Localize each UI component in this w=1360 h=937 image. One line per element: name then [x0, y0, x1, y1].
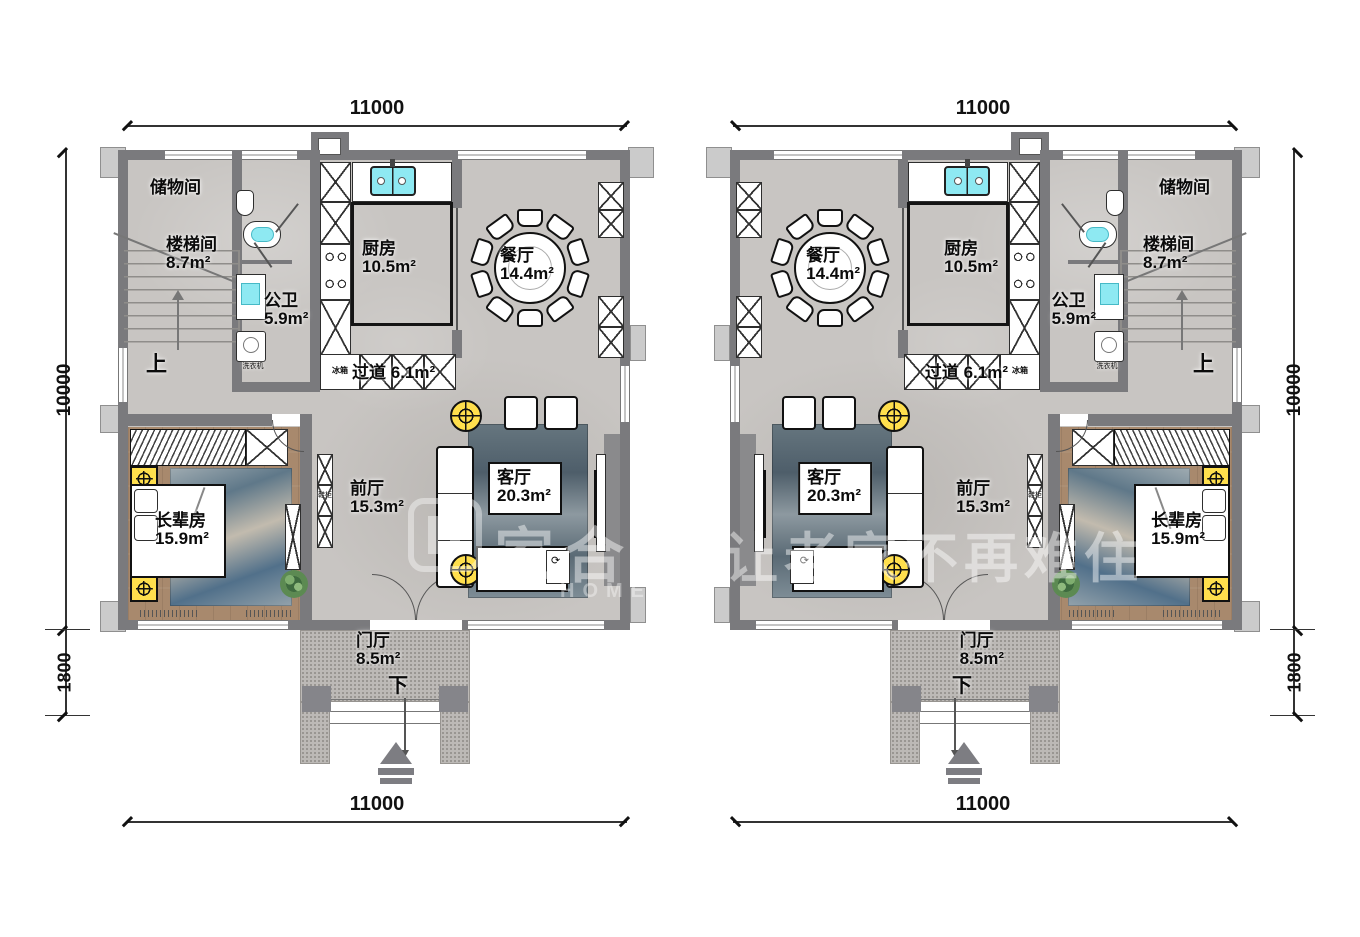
kitchen-cabinet — [320, 202, 351, 244]
dining-cabinet — [736, 210, 762, 238]
room-name: 门厅 — [960, 632, 1004, 650]
dining-chair — [817, 309, 843, 327]
room-name: 客厅 — [807, 469, 861, 487]
dimension-tick — [57, 711, 68, 722]
room-label-corridor: 过道 6.1m² — [352, 364, 435, 382]
entry-door-opening — [370, 620, 462, 630]
tv-screen — [594, 470, 597, 538]
kitchen-cabinet — [320, 162, 351, 202]
dining-cabinet — [598, 296, 624, 327]
plant — [1052, 570, 1080, 598]
sofa-cushion-line — [888, 493, 922, 494]
floor-plan-left: 11000 11000 10000 1800 — [0, 0, 690, 937]
kitchen-cabinet — [320, 300, 351, 356]
tv-board — [596, 454, 606, 552]
room-label-elder: 长辈房 15.9m² — [155, 512, 209, 549]
room-name: 餐厅 — [806, 247, 860, 265]
room-label-living: 客厅 20.3m² — [488, 462, 562, 515]
pilaster-tab — [714, 325, 730, 361]
room-area: 15.3m² — [350, 498, 404, 516]
room-label-foyer: 门厅 8.5m² — [960, 632, 1004, 669]
kitchen-cabinet — [1009, 300, 1040, 356]
stair-arrow-head — [172, 290, 184, 300]
room-area: 10.5m² — [944, 258, 998, 276]
room-name: 楼梯间 — [166, 236, 217, 254]
stair-arrow-line — [177, 298, 179, 350]
room-label-kitchen: 厨房 10.5m² — [362, 240, 416, 277]
room-area: 15.9m² — [155, 530, 209, 548]
dimension-label-top: 11000 — [327, 98, 427, 120]
room-name: 楼梯间 — [1143, 236, 1194, 254]
armchair — [504, 396, 538, 430]
room-name: 过道 — [352, 363, 386, 382]
bathtub-water — [1086, 227, 1109, 242]
chimney-inner — [1019, 138, 1042, 155]
shoe-cabinet-label: 鞋柜 — [318, 492, 332, 499]
floor-plan-image: 11000 11000 10000 1800 — [0, 0, 1360, 937]
marker-up: 上 — [146, 354, 167, 377]
window — [730, 366, 740, 422]
pilaster-tab — [714, 587, 730, 623]
room-name: 公卫 — [264, 292, 308, 310]
window-sill-comb — [246, 610, 294, 617]
dining-chair — [517, 309, 543, 327]
shoe-cabinet-label: 鞋柜 — [1028, 492, 1042, 499]
chimney-inner — [318, 138, 341, 155]
wardrobe — [1114, 429, 1230, 466]
room-name: 客厅 — [497, 469, 551, 487]
wardrobe — [130, 429, 246, 466]
dimension-label-bottom: 11000 — [933, 794, 1033, 816]
porch-step-line — [920, 723, 1030, 724]
nightstand-lamp — [1202, 576, 1230, 602]
room-name: 过道 — [925, 363, 959, 382]
kitchen-cabinet — [1009, 162, 1040, 202]
dimension-line-top — [733, 125, 1232, 127]
room-name: 厨房 — [362, 240, 416, 258]
room-label-corridor: 过道 6.1m² — [925, 364, 1008, 382]
bathtub-water — [251, 227, 274, 242]
kitchen-cabinet — [1009, 202, 1040, 244]
room-label-stairwell: 楼梯间 8.7m² — [166, 236, 217, 273]
window — [458, 150, 586, 160]
room-label-front-hall: 前厅 15.3m² — [350, 480, 404, 517]
stove — [1009, 244, 1040, 300]
entry-marker-triangle — [380, 742, 412, 764]
porch-column — [892, 686, 921, 712]
wall-kitchen-right-stub — [898, 160, 908, 208]
room-name: 餐厅 — [500, 247, 554, 265]
window — [165, 150, 297, 160]
entry-marker-bar — [948, 778, 980, 784]
kitchen-sliding-door — [902, 208, 904, 332]
bathroom-sink — [1100, 283, 1119, 305]
pillow — [1202, 489, 1226, 513]
shoe-cabinet — [1027, 516, 1043, 548]
pilaster-tab — [630, 587, 646, 623]
bathroom-sink — [241, 283, 260, 305]
tv-media-wall — [604, 434, 620, 586]
tray-glyph: ⟳ — [551, 556, 560, 568]
entry-door-opening — [898, 620, 990, 630]
room-label-kitchen: 厨房 10.5m² — [944, 240, 998, 277]
room-area: 15.3m² — [956, 498, 1010, 516]
window — [774, 150, 902, 160]
window-sill-comb — [140, 610, 198, 617]
room-label-dining: 餐厅 14.4m² — [806, 247, 860, 284]
stair-arrow-line — [1181, 298, 1183, 350]
dining-cabinet — [736, 182, 762, 210]
armchair — [544, 396, 578, 430]
porch-step-line — [920, 711, 1030, 712]
washer-label: 洗衣机 — [1087, 363, 1127, 371]
dining-cabinet — [598, 327, 624, 358]
window — [1072, 620, 1222, 630]
porch-step-line — [330, 699, 440, 700]
room-area: 14.4m² — [500, 265, 554, 283]
room-area: 8.5m² — [960, 650, 1004, 668]
room-area: 8.5m² — [356, 650, 400, 668]
shoe-cabinet — [1027, 454, 1043, 485]
window-sill-comb — [1162, 610, 1220, 617]
tv-cabinet-bedroom — [1059, 504, 1075, 570]
faucet — [390, 159, 395, 167]
tray-glyph: ⟳ — [800, 556, 809, 568]
shoe-cabinet — [317, 454, 333, 485]
armchair — [782, 396, 816, 430]
window — [1063, 150, 1195, 160]
plant — [280, 570, 308, 598]
dimension-label-top: 11000 — [933, 98, 1033, 120]
shoe-cabinet — [1027, 485, 1043, 516]
room-label-bathroom: 公卫 5.9m² — [1052, 292, 1096, 329]
wall-kitchen-right-stub — [452, 160, 462, 208]
room-name: 门厅 — [356, 632, 400, 650]
sink-basin — [377, 177, 385, 185]
window — [468, 620, 604, 630]
pilaster-tab — [706, 147, 732, 178]
sink-basin — [954, 177, 962, 185]
washer-label: 洗衣机 — [233, 363, 273, 371]
dimension-label-porch: 1800 — [55, 633, 76, 713]
armchair — [822, 396, 856, 430]
sofa-cushion-line — [888, 540, 922, 541]
room-name: 厨房 — [944, 240, 998, 258]
nightstand-lamp — [130, 576, 158, 602]
toilet — [1106, 190, 1124, 216]
marker-down: 下 — [952, 676, 972, 698]
toilet — [236, 190, 254, 216]
room-area: 6.1m² — [964, 363, 1008, 382]
tv-cabinet-bedroom — [285, 504, 301, 570]
dimension-extension — [1270, 629, 1315, 630]
room-label-dining: 餐厅 14.4m² — [500, 247, 554, 284]
dimension-label-side: 10000 — [1284, 340, 1306, 440]
room-area: 6.1m² — [391, 363, 435, 382]
sink-basin — [975, 177, 983, 185]
room-label-stairwell: 楼梯间 8.7m² — [1143, 236, 1194, 273]
dimension-extension — [45, 715, 90, 716]
sofa-cushion-line — [438, 493, 472, 494]
dining-cabinet — [736, 296, 762, 327]
room-label-front-hall: 前厅 15.3m² — [956, 480, 1010, 517]
wall-bathroom-kitchen — [1040, 150, 1050, 392]
shoe-cabinet — [317, 485, 333, 516]
room-area: 14.4m² — [806, 265, 860, 283]
wall-bathroom-bottom — [1040, 382, 1128, 392]
porch-step-line — [330, 723, 440, 724]
room-label-elder: 长辈房 15.9m² — [1151, 512, 1205, 549]
window — [620, 366, 630, 422]
room-name: 公卫 — [1052, 292, 1096, 310]
room-name: 前厅 — [350, 480, 404, 498]
ceiling-light-symbol — [878, 400, 910, 432]
porch-step-line — [920, 699, 1030, 700]
dining-chair — [817, 209, 843, 227]
dimension-tick — [1292, 711, 1303, 722]
wall-bathroom-bottom — [232, 382, 320, 392]
entry-marker-bar — [380, 778, 412, 784]
room-area: 5.9m² — [1052, 310, 1096, 328]
stair-arrow-head — [1176, 290, 1188, 300]
pilaster-tab — [628, 147, 654, 178]
window — [756, 620, 892, 630]
ceiling-light-symbol — [450, 400, 482, 432]
dimension-extension — [1270, 715, 1315, 716]
room-label-living: 客厅 20.3m² — [798, 462, 872, 515]
entry-marker-bar — [946, 768, 982, 775]
wall-bathroom-kitchen — [310, 150, 320, 392]
room-label-bathroom: 公卫 5.9m² — [264, 292, 308, 329]
pillow — [134, 489, 158, 513]
dining-cabinet — [598, 210, 624, 238]
dimension-label-bottom: 11000 — [327, 794, 427, 816]
room-area: 20.3m² — [497, 487, 551, 505]
window-sill-comb — [1066, 610, 1114, 617]
marker-up: 上 — [1193, 354, 1214, 377]
sofa-cushion-line — [438, 540, 472, 541]
dimension-line-bottom — [128, 821, 627, 823]
entry-marker-triangle — [948, 742, 980, 764]
room-name: 长辈房 — [155, 512, 209, 530]
room-area: 5.9m² — [264, 310, 308, 328]
dining-cabinet — [736, 327, 762, 358]
dining-cabinet — [598, 182, 624, 210]
porch-column — [302, 686, 331, 712]
porch-step-line — [330, 711, 440, 712]
room-area: 8.7m² — [1143, 254, 1194, 272]
pilaster-tab — [630, 325, 646, 361]
room-name: 前厅 — [956, 480, 1010, 498]
room-area: 20.3m² — [807, 487, 861, 505]
room-label-storage: 储物间 — [1159, 179, 1210, 197]
tv-screen — [763, 470, 766, 538]
porch-column — [439, 686, 468, 712]
dimension-label-side: 10000 — [54, 340, 76, 440]
stove — [320, 244, 351, 300]
porch-column — [1029, 686, 1058, 712]
faucet — [965, 159, 970, 167]
room-area: 8.7m² — [166, 254, 217, 272]
room-label-storage: 储物间 — [150, 179, 201, 197]
pillow — [1202, 515, 1226, 541]
dimension-label-porch: 1800 — [1285, 633, 1306, 713]
sink-basin — [398, 177, 406, 185]
marker-down: 下 — [388, 676, 408, 698]
dining-chair — [517, 209, 543, 227]
room-label-foyer: 门厅 8.5m² — [356, 632, 400, 669]
kitchen-sliding-door — [456, 208, 458, 332]
kitchen-sink — [944, 166, 990, 196]
dimension-line-bottom — [733, 821, 1232, 823]
shoe-cabinet — [317, 516, 333, 548]
floor-plan-right: 11000 11000 10000 1800 — [670, 0, 1360, 937]
room-name: 长辈房 — [1151, 512, 1205, 530]
washing-machine-drum — [1101, 337, 1117, 353]
window — [1232, 348, 1242, 402]
room-area: 10.5m² — [362, 258, 416, 276]
dimension-line-top — [128, 125, 627, 127]
window — [118, 348, 128, 402]
dimension-extension — [45, 629, 90, 630]
washing-machine-drum — [243, 337, 259, 353]
entry-marker-bar — [378, 768, 414, 775]
window — [138, 620, 288, 630]
room-area: 15.9m² — [1151, 530, 1205, 548]
